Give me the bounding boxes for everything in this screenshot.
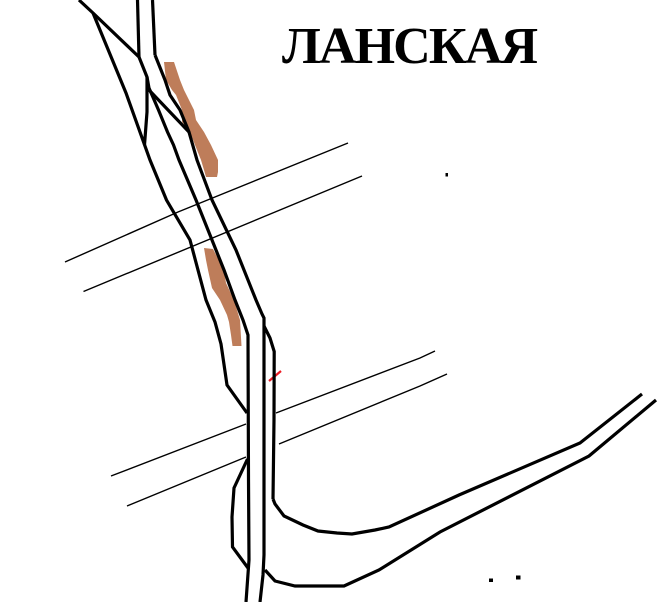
svg-text:ЛАНСКАЯ: ЛАНСКАЯ bbox=[282, 18, 538, 75]
